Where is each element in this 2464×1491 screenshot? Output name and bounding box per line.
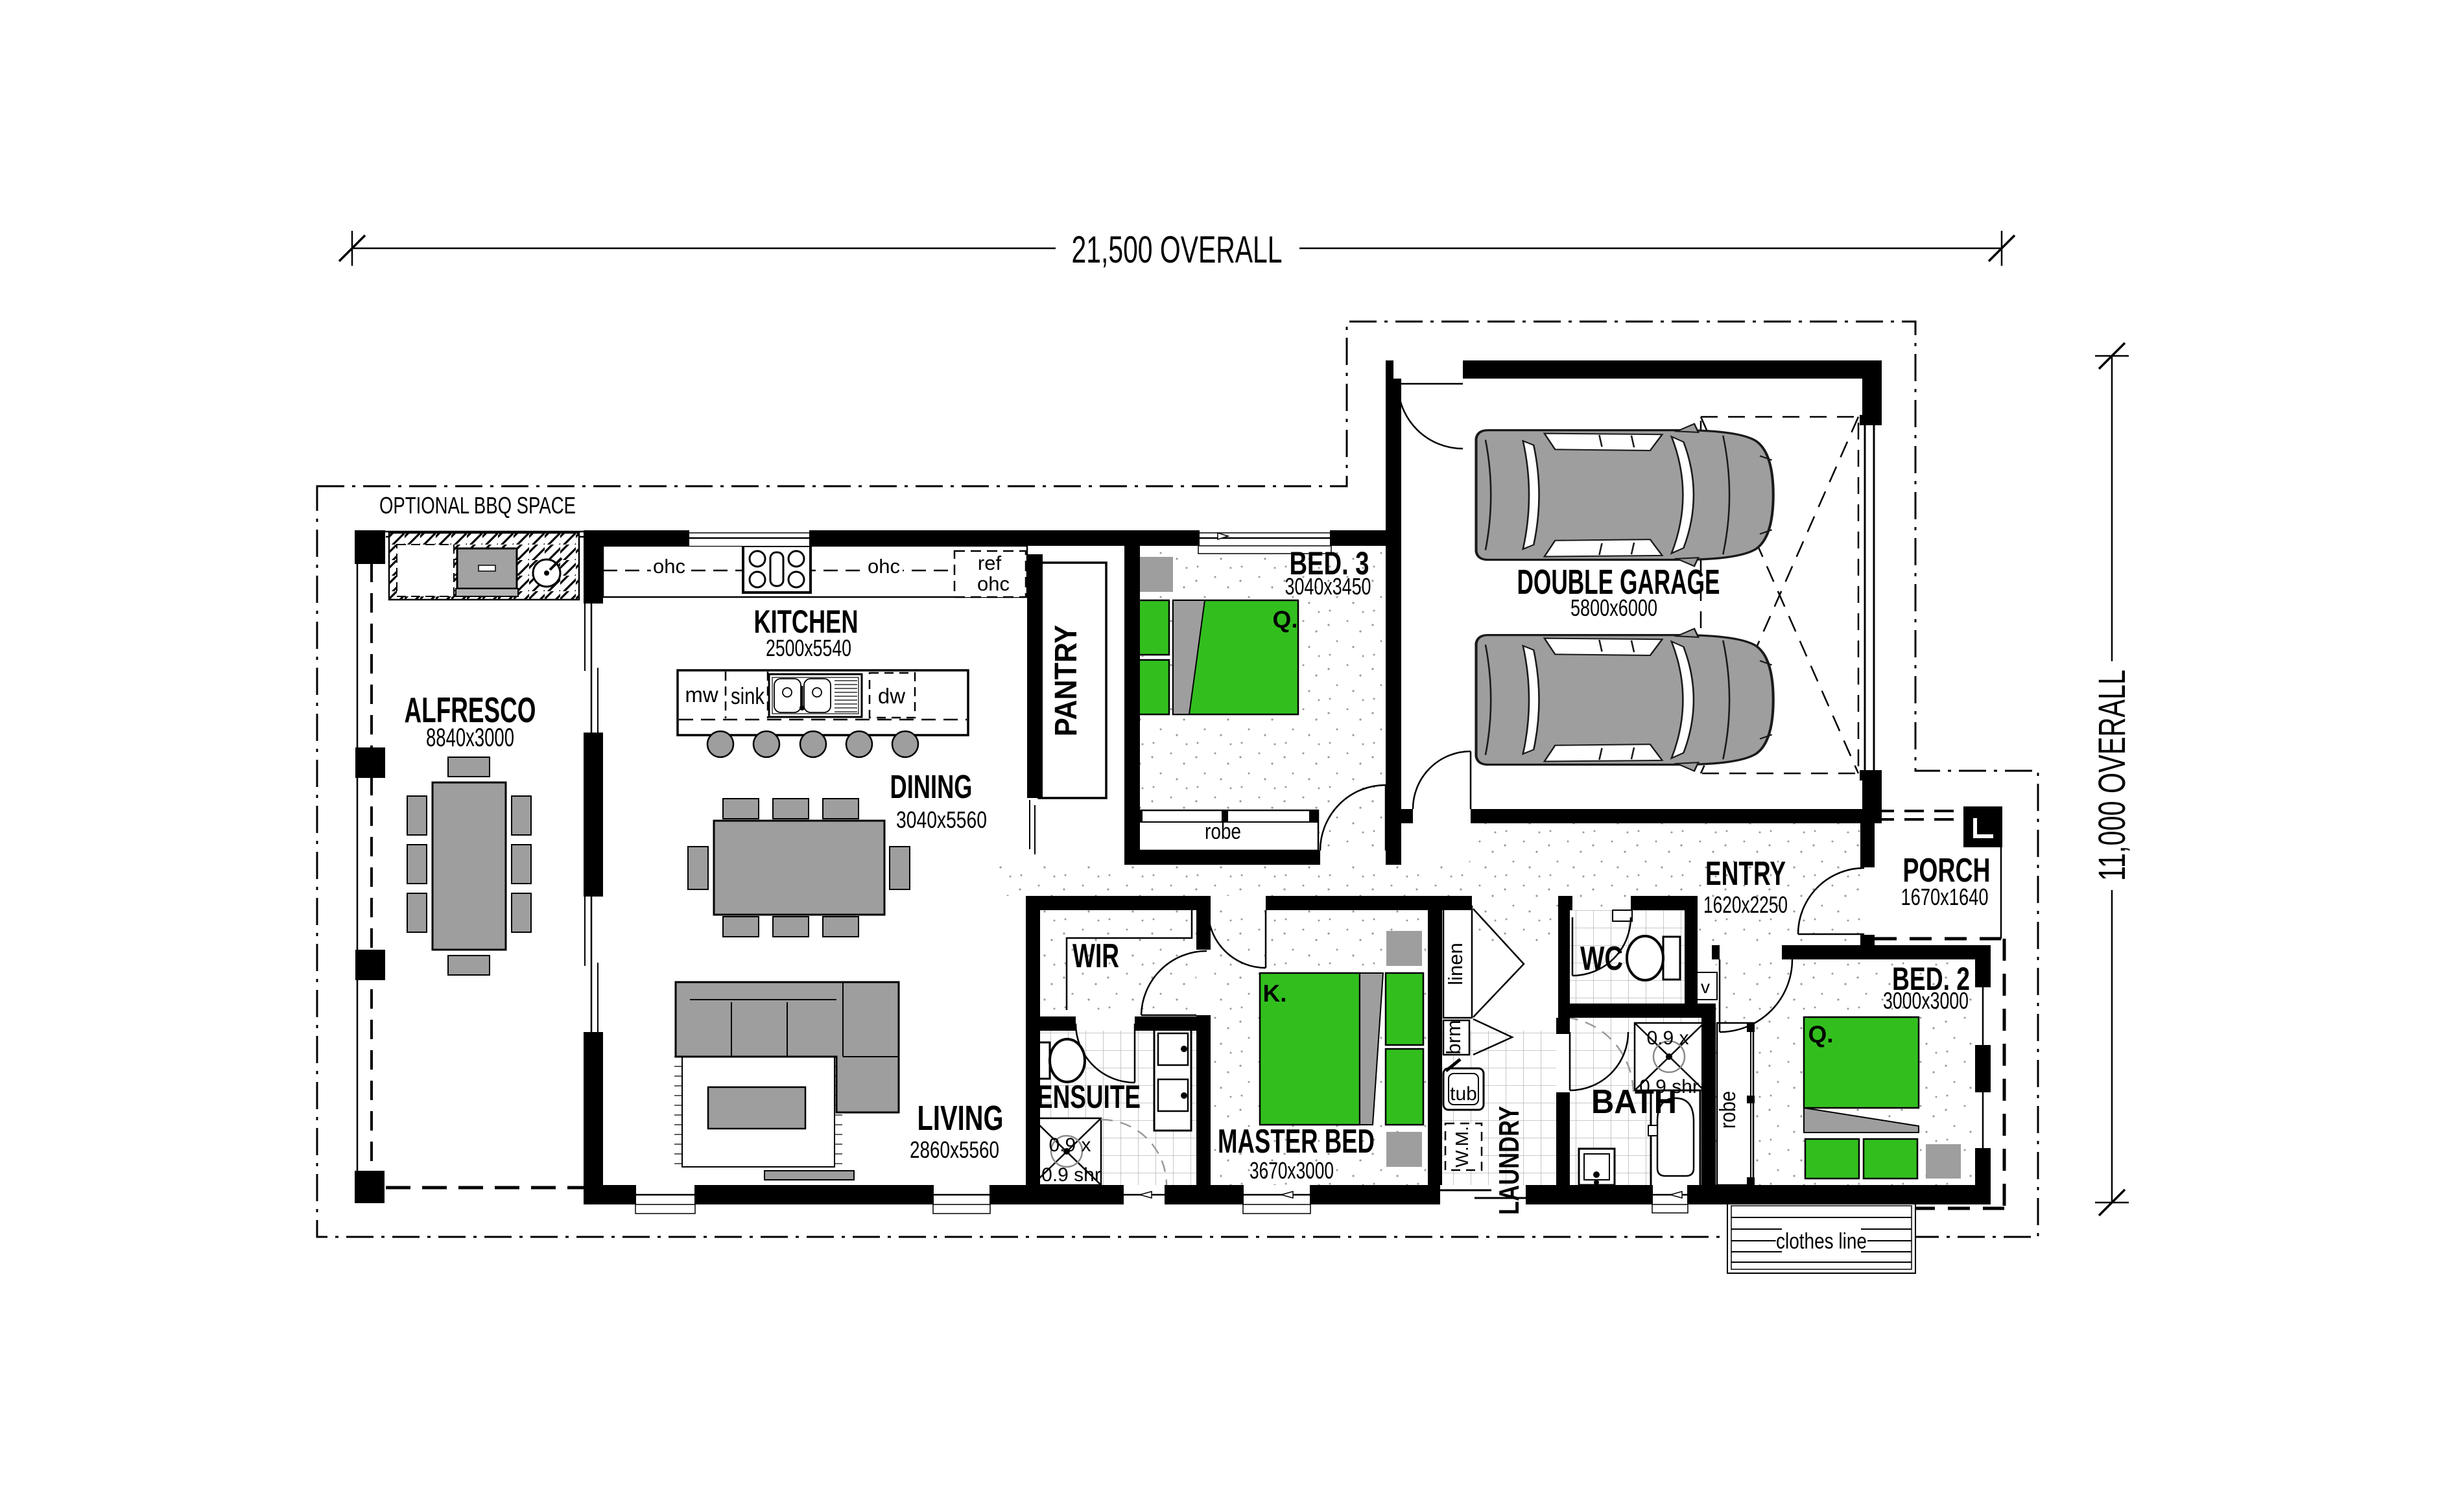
svg-text:ENSUITE: ENSUITE bbox=[1037, 1079, 1141, 1115]
svg-text:3040x5560: 3040x5560 bbox=[896, 806, 987, 833]
svg-text:LAUNDRY: LAUNDRY bbox=[1493, 1106, 1525, 1215]
svg-text:1620x2250: 1620x2250 bbox=[1703, 891, 1788, 918]
svg-text:v: v bbox=[1701, 977, 1710, 997]
svg-text:0.9 shr: 0.9 shr bbox=[1041, 1164, 1101, 1186]
svg-text:LIVING: LIVING bbox=[918, 1099, 1004, 1138]
svg-text:tub: tub bbox=[1450, 1083, 1477, 1105]
svg-text:WC: WC bbox=[1580, 940, 1623, 978]
svg-text:21,500 OVERALL: 21,500 OVERALL bbox=[1072, 229, 1283, 271]
svg-text:5800x6000: 5800x6000 bbox=[1570, 594, 1657, 621]
svg-text:PANTRY: PANTRY bbox=[1049, 625, 1084, 736]
svg-text:3040x3450: 3040x3450 bbox=[1285, 573, 1371, 600]
svg-text:Q.: Q. bbox=[1272, 606, 1297, 633]
svg-text:ENTRY: ENTRY bbox=[1705, 855, 1786, 893]
svg-text:W.M.: W.M. bbox=[1452, 1126, 1472, 1168]
svg-text:11,000 OVERALL: 11,000 OVERALL bbox=[2091, 670, 2133, 881]
svg-text:DINING: DINING bbox=[890, 768, 973, 805]
svg-text:2860x5560: 2860x5560 bbox=[910, 1136, 999, 1163]
svg-text:ohc: ohc bbox=[977, 572, 1010, 595]
svg-text:brm: brm bbox=[1442, 1020, 1465, 1054]
svg-text:0.9 x: 0.9 x bbox=[1646, 1027, 1688, 1049]
svg-text:0.9 shr: 0.9 shr bbox=[1639, 1076, 1699, 1098]
svg-text:Q.: Q. bbox=[1808, 1021, 1833, 1048]
svg-text:1670x1640: 1670x1640 bbox=[1901, 884, 1989, 910]
svg-text:MASTER BED: MASTER BED bbox=[1218, 1123, 1375, 1160]
svg-text:robe: robe bbox=[1716, 1091, 1740, 1129]
svg-text:dw: dw bbox=[878, 684, 905, 708]
svg-text:linen: linen bbox=[1444, 943, 1467, 985]
svg-text:3000x3000: 3000x3000 bbox=[1883, 987, 1969, 1014]
svg-text:clothes line: clothes line bbox=[1776, 1229, 1867, 1254]
svg-text:sink: sink bbox=[731, 683, 765, 709]
svg-text:OPTIONAL BBQ SPACE: OPTIONAL BBQ SPACE bbox=[379, 492, 576, 519]
svg-text:ohc: ohc bbox=[653, 555, 685, 578]
svg-text:0.9 x: 0.9 x bbox=[1048, 1134, 1091, 1156]
svg-text:K.: K. bbox=[1263, 980, 1287, 1007]
svg-text:2500x5540: 2500x5540 bbox=[766, 635, 851, 661]
svg-text:mw: mw bbox=[685, 683, 718, 707]
svg-text:3670x3000: 3670x3000 bbox=[1250, 1157, 1334, 1184]
svg-text:ohc: ohc bbox=[868, 555, 900, 578]
svg-text:WIR: WIR bbox=[1072, 937, 1119, 975]
svg-text:8840x3000: 8840x3000 bbox=[426, 723, 514, 752]
svg-text:robe: robe bbox=[1205, 819, 1241, 844]
svg-text:ref: ref bbox=[978, 552, 1002, 574]
